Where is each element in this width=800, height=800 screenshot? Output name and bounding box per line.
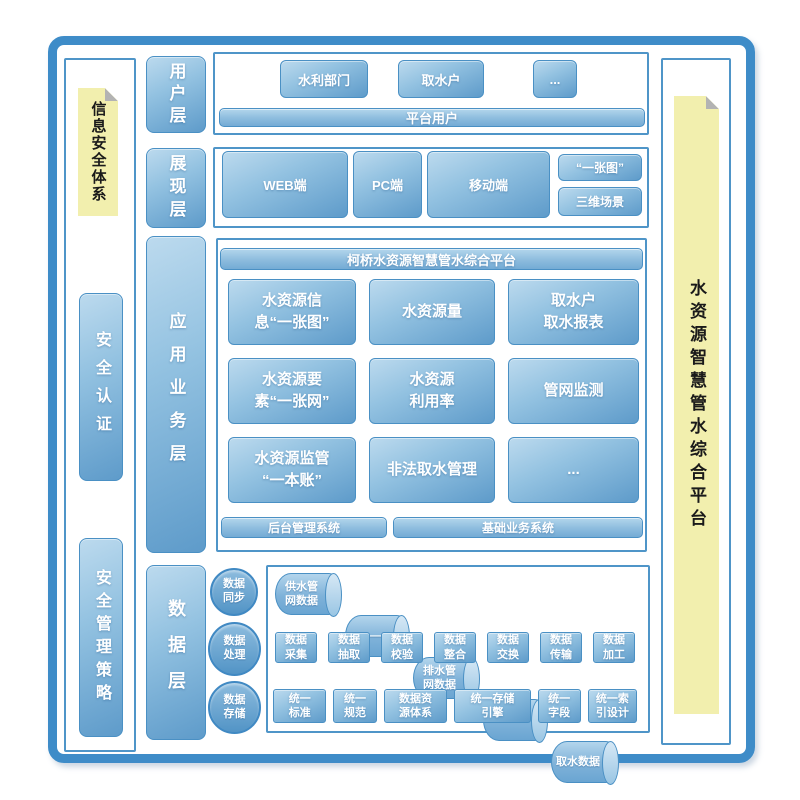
cylinder-supply-pipe-label: 供水管 网数据 (285, 580, 318, 609)
standard-box-storage-engine: 统一存储 引擎 (454, 689, 530, 723)
box-info-one-map: 水资源信 息“一张图” (228, 279, 356, 345)
security-auth-box: 安全认证 (79, 293, 123, 481)
standard-box-field-label: 统一 字段 (548, 692, 570, 721)
process-box-transfer-label: 数据 传输 (550, 633, 572, 662)
box-water-dept-label: 水利部门 (298, 70, 350, 89)
bar-platform-users: 平台用户 (219, 108, 645, 127)
security-policy-label: 安全管理策略 (89, 569, 113, 707)
box-utilization-rate-label: 水资源 利用率 (409, 369, 454, 414)
layer-label-application: 应用业务层 (146, 236, 206, 553)
process-box-collect: 数据 采集 (275, 632, 317, 663)
box-web-label: WEB端 (263, 175, 306, 194)
data-process-row: 数据 采集 数据 抽取 数据 校验 数据 整合 数据 交换 数据 传输 数据 加… (275, 632, 635, 663)
process-box-machining-label: 数据 加工 (603, 633, 625, 662)
box-intake-report: 取水户 取水报表 (508, 279, 639, 345)
box-mobile-label: 移动端 (469, 175, 508, 194)
circle-data-process-label: 数据 处理 (224, 635, 246, 663)
platform-note: 水资源智慧管水综合平台 (674, 96, 719, 714)
box-element-one-net-label: 水资源要 素“一张网” (254, 369, 329, 414)
circle-data-storage-label: 数据 存储 (224, 694, 246, 722)
box-ellipsis-user: ... (533, 60, 577, 98)
box-pc-label: PC端 (372, 175, 403, 194)
data-standards-row: 统一 标准 统一 规范 数据资 源体系 统一存储 引擎 统一 字段 统一索 引设… (273, 689, 637, 723)
layer-label-data-text: 数据层 (163, 599, 189, 707)
box-water-quantity-label: 水资源量 (402, 301, 462, 324)
layer-label-application-text: 应用业务层 (164, 312, 189, 477)
cylinder-drain-pipe-label: 排水管 网数据 (423, 664, 456, 693)
process-box-extract-label: 数据 抽取 (338, 633, 360, 662)
circle-data-process: 数据 处理 (208, 622, 261, 676)
process-box-transfer: 数据 传输 (540, 632, 582, 663)
standard-box-storage-engine-label: 统一存储 引擎 (470, 692, 514, 721)
standard-box-field: 统一 字段 (538, 689, 581, 723)
standard-box-standard-label: 统一 标准 (289, 692, 311, 721)
layer-label-user: 用户层 (146, 56, 206, 133)
process-box-integrate: 数据 整合 (434, 632, 476, 663)
box-one-map-small-label: “一张图” (576, 159, 624, 176)
box-web: WEB端 (222, 151, 348, 218)
cylinder-intake-data: 取水数据 (551, 741, 618, 783)
box-pipe-monitor-label: 管网监测 (543, 380, 603, 403)
standard-box-resource-system-label: 数据资 源体系 (399, 692, 432, 721)
bar-backend-system-label: 后台管理系统 (268, 519, 340, 536)
architecture-diagram: 信息安全体系 安全认证 安全管理策略 水资源智慧管水综合平台 用户层 展现层 应… (0, 0, 800, 800)
standard-box-index-design: 统一索 引设计 (588, 689, 637, 723)
circle-data-sync: 数据 同步 (210, 568, 258, 616)
box-element-one-net: 水资源要 素“一张网” (228, 358, 356, 424)
security-note: 信息安全体系 (78, 88, 118, 216)
box-ellipsis-user-label: ... (550, 72, 561, 87)
box-water-dept: 水利部门 (280, 60, 368, 98)
process-box-verify: 数据 校验 (381, 632, 423, 663)
layer-label-presentation: 展现层 (146, 148, 206, 228)
security-policy-box: 安全管理策略 (79, 538, 123, 737)
layer-label-data: 数据层 (146, 565, 206, 740)
standard-box-spec: 统一 规范 (333, 689, 376, 723)
box-supervision-ledger: 水资源监管 “一本账” (228, 437, 356, 503)
box-3d-scene: 三维场景 (558, 187, 642, 216)
box-one-map-small: “一张图” (558, 154, 642, 181)
box-supervision-ledger-label: 水资源监管 “一本账” (254, 448, 329, 493)
box-illegal-intake: 非法取水管理 (369, 437, 495, 503)
app-header-label: 柯桥水资源智慧管水综合平台 (347, 250, 516, 269)
bar-backend-system: 后台管理系统 (221, 517, 387, 538)
security-note-label: 信息安全体系 (88, 101, 109, 203)
standard-box-index-design-label: 统一索 引设计 (596, 692, 629, 721)
standard-box-resource-system: 数据资 源体系 (384, 689, 448, 723)
process-box-exchange-label: 数据 交换 (497, 633, 519, 662)
process-box-machining: 数据 加工 (593, 632, 635, 663)
app-header-bar: 柯桥水资源智慧管水综合平台 (220, 248, 643, 270)
box-3d-scene-label: 三维场景 (576, 193, 624, 210)
box-info-one-map-label: 水资源信 息“一张图” (254, 290, 329, 335)
standard-box-standard: 统一 标准 (273, 689, 326, 723)
circle-data-storage: 数据 存储 (208, 681, 261, 734)
process-box-integrate-label: 数据 整合 (444, 633, 466, 662)
layer-label-presentation-text: 展现层 (164, 154, 189, 223)
cylinder-supply-pipe: 供水管 网数据 (275, 573, 341, 615)
process-box-extract: 数据 抽取 (328, 632, 370, 663)
platform-note-label: 水资源智慧管水综合平台 (684, 279, 709, 532)
box-illegal-intake-label: 非法取水管理 (387, 459, 477, 482)
box-water-user-label: 取水户 (421, 70, 460, 89)
box-utilization-rate: 水资源 利用率 (369, 358, 495, 424)
box-pc: PC端 (353, 151, 422, 218)
box-ellipsis-app: ... (508, 437, 639, 503)
process-box-exchange: 数据 交换 (487, 632, 529, 663)
box-pipe-monitor: 管网监测 (508, 358, 639, 424)
standard-box-spec-label: 统一 规范 (344, 692, 366, 721)
layer-label-user-text: 用户层 (164, 62, 189, 128)
cylinder-intake-data-label: 取水数据 (556, 755, 600, 769)
box-ellipsis-app-label: ... (567, 459, 580, 482)
process-box-verify-label: 数据 校验 (391, 633, 413, 662)
bar-basic-business: 基础业务系统 (393, 517, 643, 538)
box-mobile: 移动端 (427, 151, 550, 218)
bar-basic-business-label: 基础业务系统 (482, 519, 554, 536)
box-water-quantity: 水资源量 (369, 279, 495, 345)
circle-data-sync-label: 数据 同步 (223, 578, 245, 606)
process-box-collect-label: 数据 采集 (285, 633, 307, 662)
box-intake-report-label: 取水户 取水报表 (543, 290, 603, 335)
security-auth-label: 安全认证 (89, 331, 113, 443)
bar-platform-users-label: 平台用户 (406, 108, 458, 127)
box-water-user: 取水户 (398, 60, 484, 98)
